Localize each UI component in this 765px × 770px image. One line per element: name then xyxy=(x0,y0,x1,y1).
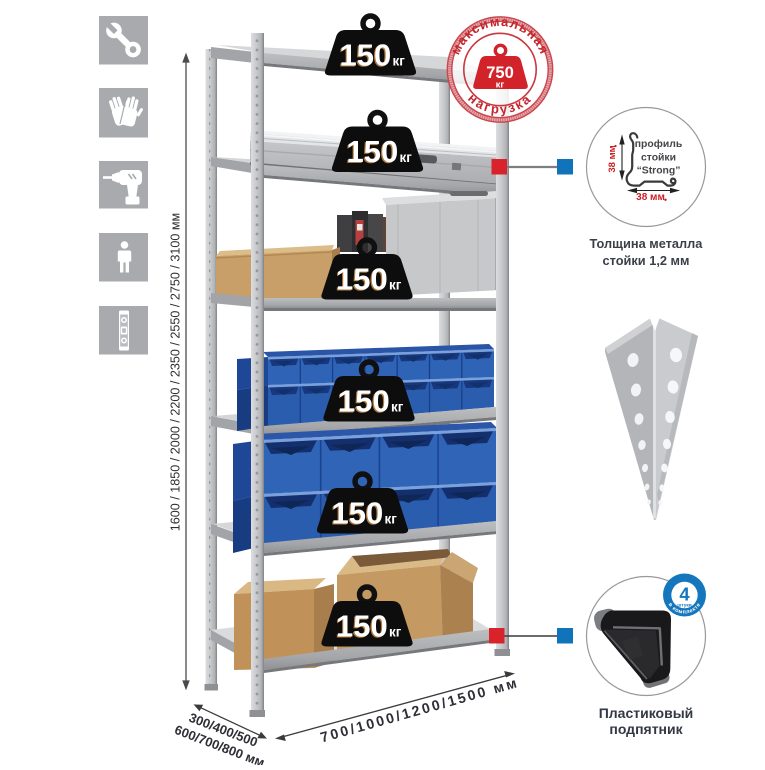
svg-text:профиль: профиль xyxy=(635,138,682,150)
svg-text:стойки 1,2 мм: стойки 1,2 мм xyxy=(602,253,689,268)
svg-text:Пластиковый: Пластиковый xyxy=(599,705,694,721)
svg-text:кг: кг xyxy=(496,80,505,91)
svg-text:“Strong”: “Strong” xyxy=(637,166,681,177)
svg-text:стойки: стойки xyxy=(641,153,676,164)
svg-text:4: 4 xyxy=(679,584,690,605)
svg-text:подпятник: подпятник xyxy=(609,721,683,737)
svg-text:штуки: штуки xyxy=(677,603,692,608)
svg-text:38 мм: 38 мм xyxy=(607,145,618,172)
svg-text:1600 / 1850 / 2000 / 2200 / 23: 1600 / 1850 / 2000 / 2200 / 2350 / 2550 … xyxy=(169,213,183,531)
svg-text:38 мм: 38 мм xyxy=(636,192,665,203)
svg-text:Толщина металла: Толщина металла xyxy=(590,236,704,251)
